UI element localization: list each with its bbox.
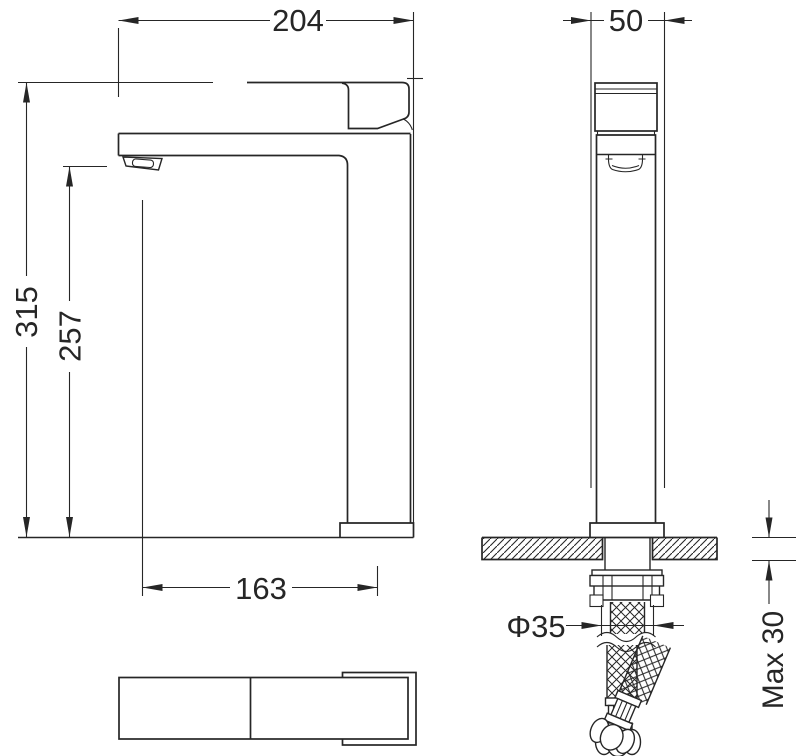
dim-hole-diameter-label: Φ35 [506, 609, 565, 644]
mounting-shank [605, 538, 650, 571]
dim-hole-diameter: Φ35 [506, 605, 684, 644]
spout-underside [119, 156, 348, 524]
locking-nut [590, 576, 664, 607]
lever-handle-front [247, 83, 412, 131]
dim-163-label: 163 [235, 571, 287, 606]
dim-163: 163 [143, 200, 378, 606]
side-view [482, 83, 717, 756]
body-side [597, 135, 656, 523]
dim-50: 50 [563, 3, 692, 488]
aerator-side [606, 155, 646, 172]
dim-max-thickness: Max 30 [752, 500, 796, 709]
dim-50-label: 50 [609, 3, 643, 38]
spout-top-view [119, 678, 408, 740]
handle-side [595, 83, 657, 135]
base-plate-front [340, 523, 414, 538]
front-view [18, 12, 423, 538]
aerator-front [123, 157, 162, 170]
top-view [119, 673, 416, 746]
dim-max-thickness-label: Max 30 [757, 611, 790, 709]
faucet-technical-drawing: 204 50 315 257 163 Φ35 [0, 0, 800, 756]
dim-204-label: 204 [272, 3, 324, 38]
dim-315: 315 [9, 83, 213, 538]
base-plate-side [590, 523, 664, 538]
dim-257-label: 257 [53, 310, 88, 362]
drawing-sheet: 204 50 315 257 163 Φ35 [0, 0, 800, 756]
dim-257: 257 [53, 167, 108, 538]
countertop [482, 538, 717, 560]
dim-315-label: 315 [9, 286, 44, 338]
washer [592, 570, 662, 576]
